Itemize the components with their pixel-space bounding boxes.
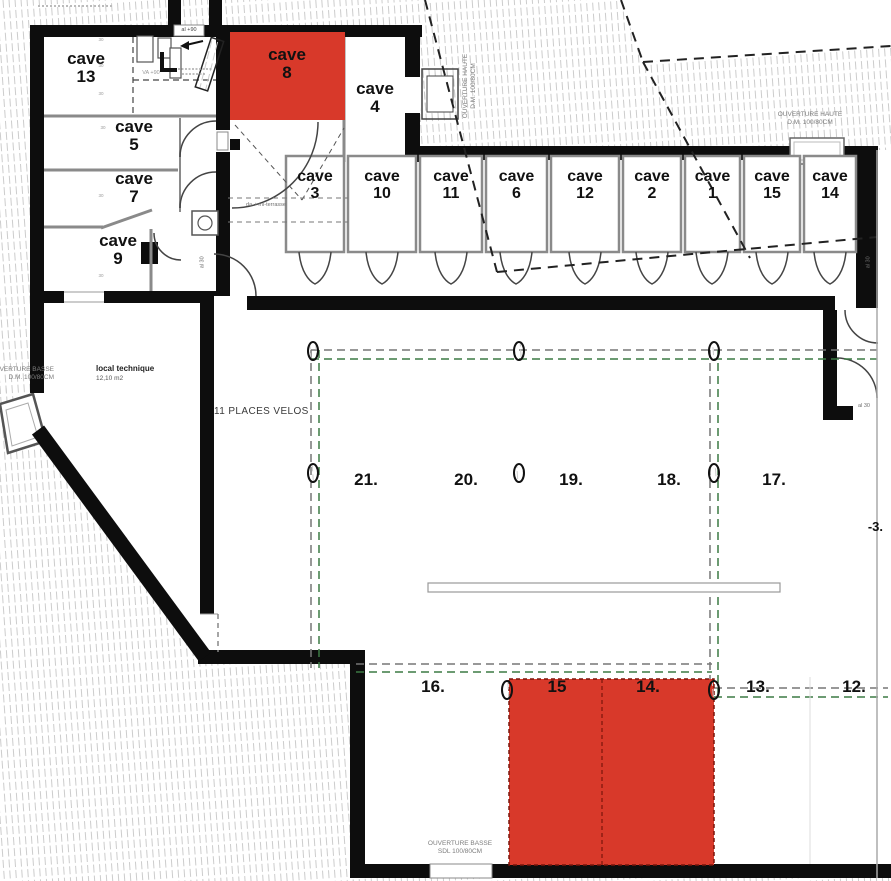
parking-spot-14: 14. — [618, 677, 678, 697]
va90-label: VA +90 — [136, 70, 166, 77]
wall-mark: 30 — [95, 37, 107, 42]
al30-right-wall: al 30 — [866, 249, 873, 275]
places-velos-label: 11 PLACES VELOS — [214, 406, 309, 417]
room-label-cave11: cave 11 — [420, 168, 482, 203]
ouverture-haute-right-label: OUVERTURE HAUTE D.M. 100/80CM — [766, 111, 854, 127]
parking-spot-19: 19. — [541, 470, 601, 490]
room-label-cave14: cave 14 — [804, 168, 856, 203]
al90-box-label: al +90 — [174, 27, 204, 34]
parking-spot-20: 20. — [436, 470, 496, 490]
room-label-cave13: cave 13 — [40, 50, 132, 87]
ouverture-haute-left-label: OUVERTURE HAUTE D.M. 100/80CM — [462, 42, 478, 130]
wall-mark: 30 — [97, 125, 109, 130]
floor-plan: cave 13 cave 5 cave 7 cave 9 cave 8 cave… — [0, 0, 891, 881]
room-label-cave4: cave 4 — [340, 80, 410, 117]
parking-spot-21: 21. — [336, 470, 396, 490]
al30-right-door: al 30 — [850, 403, 878, 410]
ouverture-basse-bottom-label: OUVERTURE BASSE SDL 100/80CM — [416, 840, 504, 856]
room-label-cave8: cave 8 — [237, 46, 337, 83]
wall-mark: 30 — [95, 91, 107, 96]
wall-mark: 30 — [95, 63, 107, 68]
parking-spot-12: 12. — [824, 677, 884, 697]
room-label-cave6: cave 6 — [486, 168, 547, 203]
room-label-cave10: cave 10 — [348, 168, 416, 203]
level-annotation: -3. — [845, 519, 883, 534]
wall-mark: 30 — [95, 273, 107, 278]
beam-edge — [428, 583, 780, 592]
room-label-cave9: cave 9 — [72, 232, 164, 269]
column-markers — [308, 342, 719, 699]
wall-mark: 30 — [95, 193, 107, 198]
room-label-cave1: cave 1 — [685, 168, 740, 203]
room-label-cave15: cave 15 — [744, 168, 800, 203]
room-label-cave7: cave 7 — [88, 170, 180, 207]
room-label-cave12: cave 12 — [551, 168, 619, 203]
room-label-cave3: cave 3 — [286, 168, 344, 203]
parking-spot-18: 18. — [639, 470, 699, 490]
parking-spot-15: 15 — [527, 677, 587, 697]
local-technique-area: 12,10 m2 — [96, 375, 176, 382]
local-technique-label: local technique — [96, 364, 206, 373]
al30-garage-door: al 30 — [200, 249, 207, 275]
parking-spot-16: 16. — [403, 677, 463, 697]
parking-spot-17: 17. — [744, 470, 804, 490]
parking-boundary-dashed — [311, 350, 888, 700]
window-well-top — [422, 69, 458, 119]
cave-door-arcs — [299, 252, 846, 284]
parking-spot-13: 13. — [728, 677, 788, 697]
room-label-cave5: cave 5 — [88, 118, 180, 155]
room-label-cave2: cave 2 — [623, 168, 681, 203]
terrasse-note: da + mi-terrasse — [228, 202, 304, 209]
ouverture-basse-left-label: OUVERTURE BASSE D.M. 100/80CM — [0, 366, 54, 382]
highlight-parking-zone — [509, 679, 714, 865]
wc-fixture — [192, 211, 218, 235]
